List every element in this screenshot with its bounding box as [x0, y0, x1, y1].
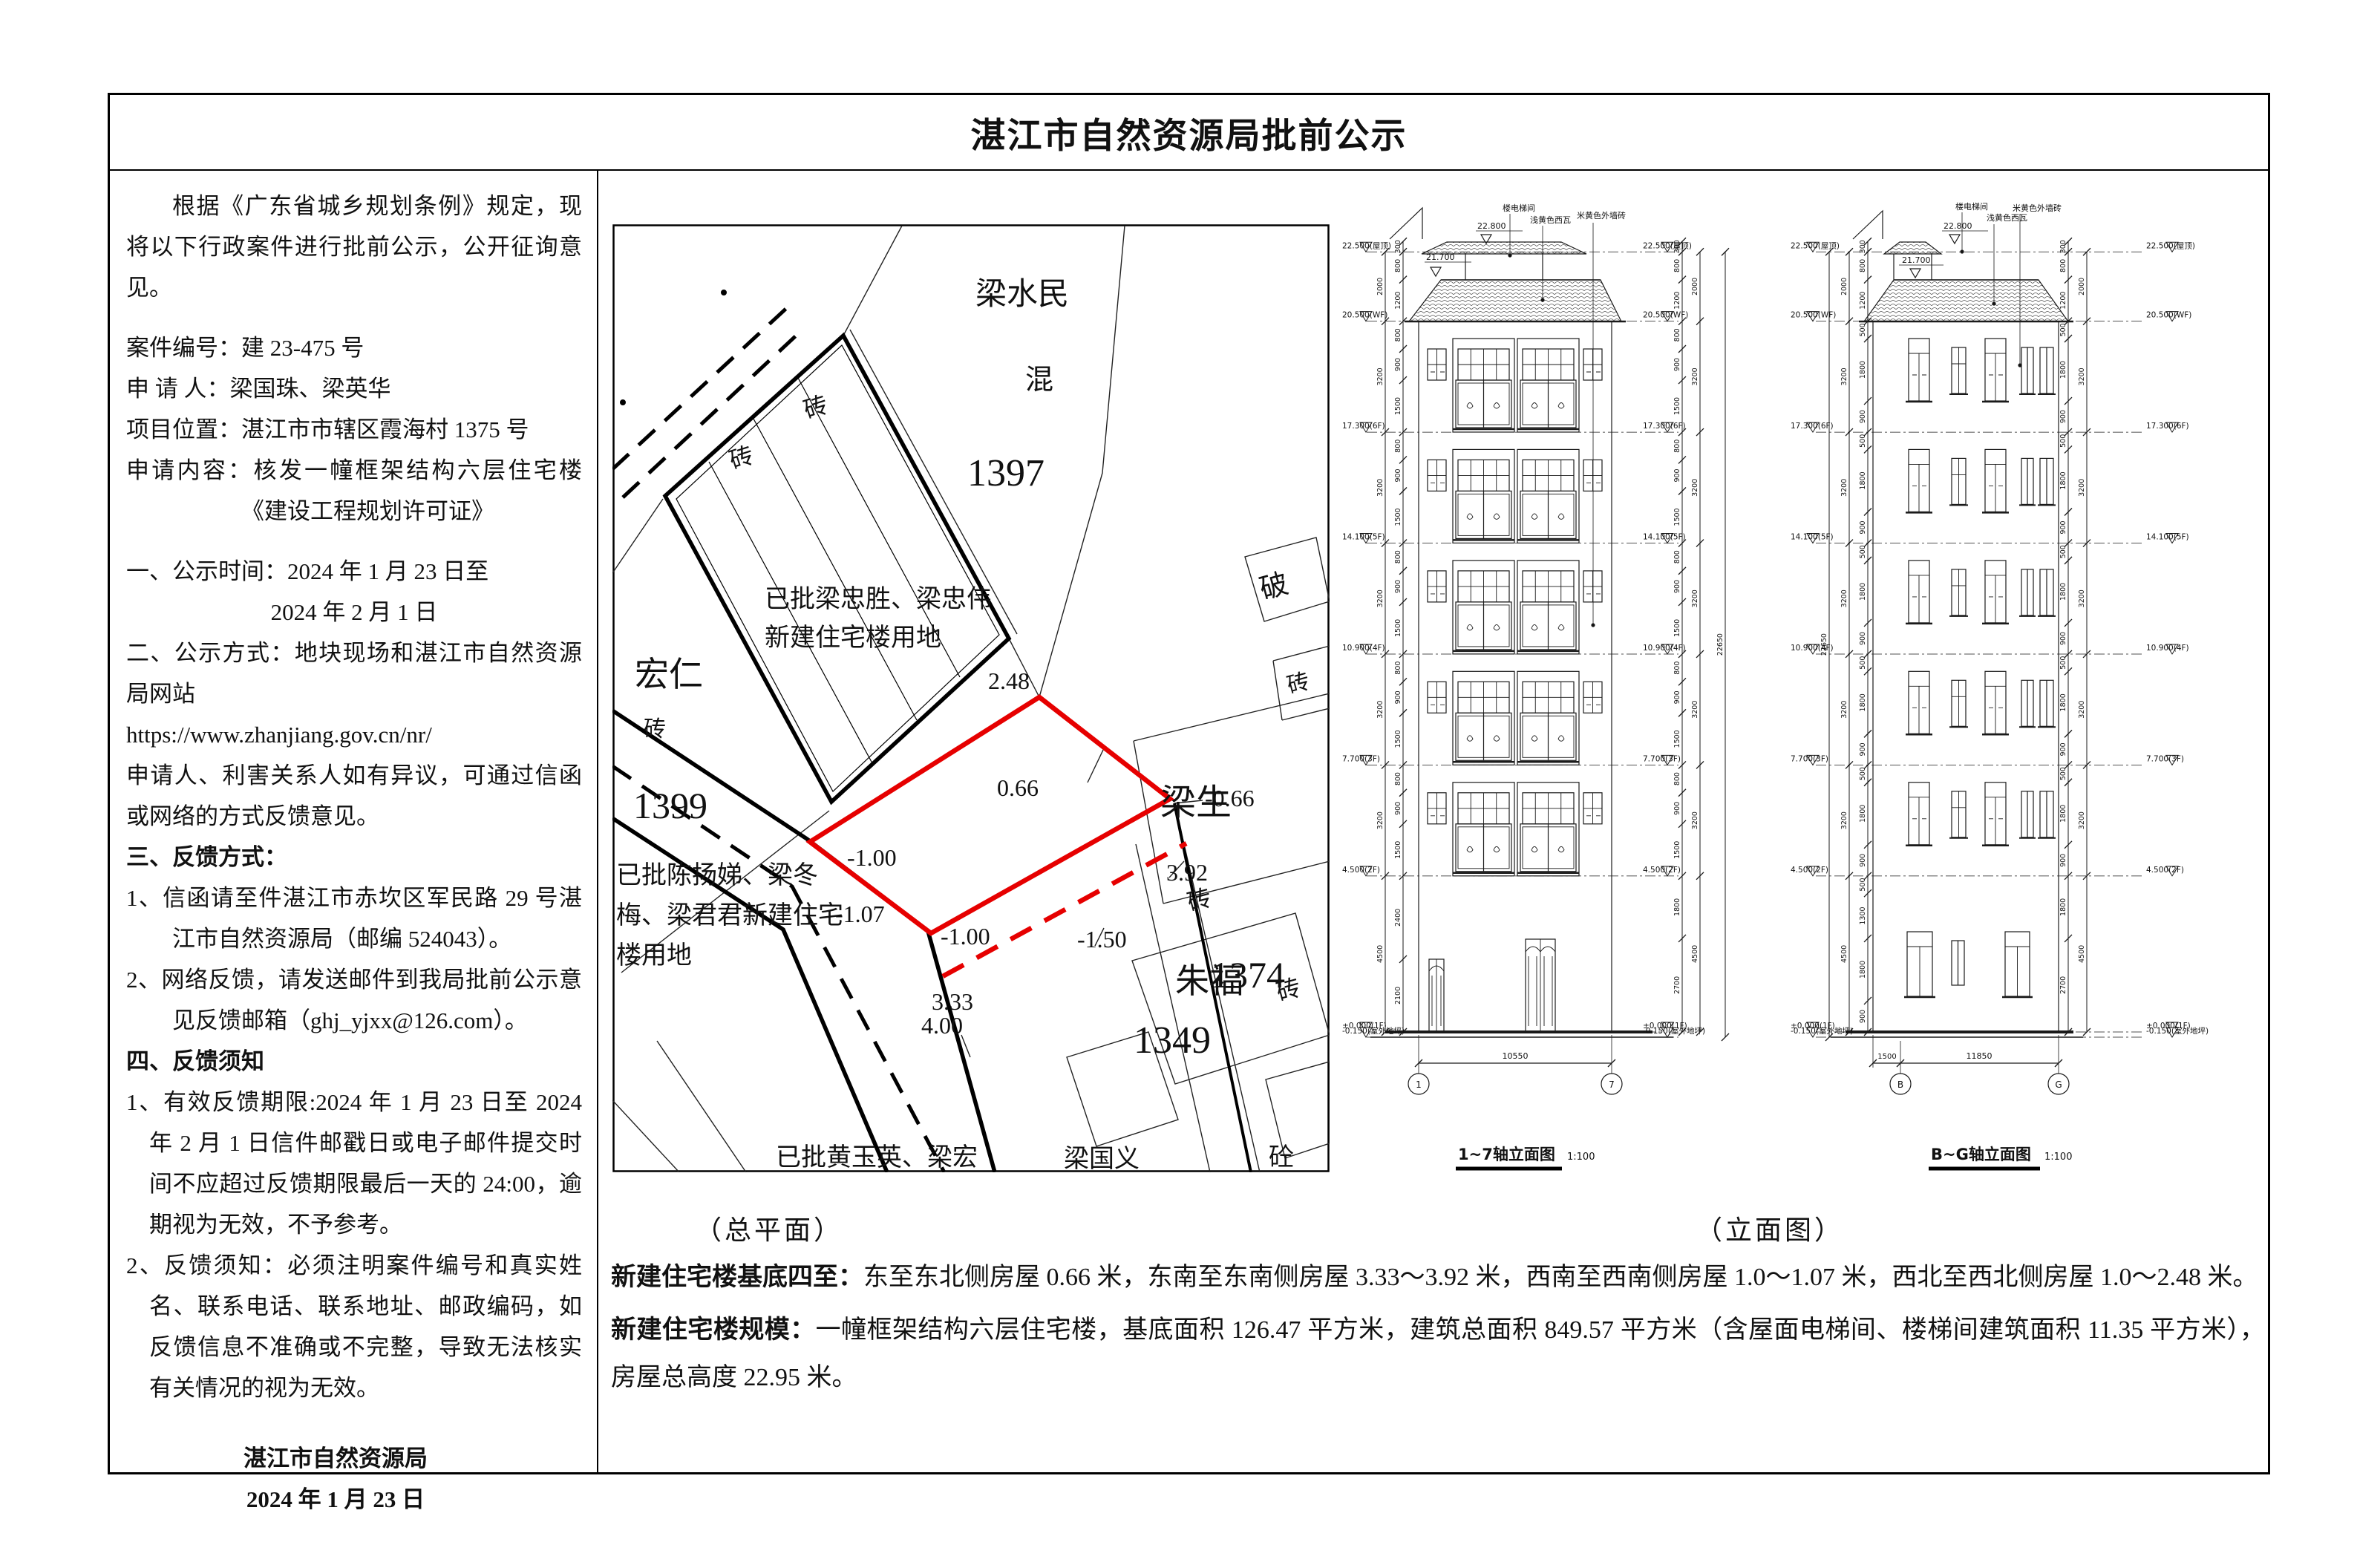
- svg-text:1800: 1800: [1859, 693, 1867, 711]
- svg-text:宏仁: 宏仁: [635, 656, 703, 693]
- svg-text:2000: 2000: [2078, 278, 2086, 295]
- svg-text:浅黄色西瓦: 浅黄色西瓦: [1987, 212, 2027, 223]
- svg-text:1800: 1800: [1859, 583, 1867, 601]
- text-line: 1、有效反馈期限:2024 年 1 月 23 日至 2024 年 2 月 1 日…: [126, 1082, 582, 1245]
- svg-text:3200: 3200: [1376, 701, 1385, 719]
- svg-text:-1.07: -1.07: [835, 901, 885, 927]
- svg-text:17.300(6F): 17.300(6F): [1342, 422, 1385, 431]
- svg-text:22.500(屋顶): 22.500(屋顶): [1643, 241, 1692, 250]
- svg-text:1800: 1800: [2059, 693, 2067, 711]
- svg-text:11850: 11850: [1967, 1051, 1993, 1061]
- svg-text:14.100(5F): 14.100(5F): [1342, 533, 1385, 542]
- svg-text:砖: 砖: [644, 717, 666, 742]
- svg-text:B~G轴立面图: B~G轴立面图: [1931, 1146, 2031, 1163]
- svg-text:500: 500: [2059, 323, 2067, 336]
- svg-text:800: 800: [2059, 259, 2067, 272]
- svg-text:4.500(2F): 4.500(2F): [1791, 866, 1828, 875]
- svg-text:B: B: [1897, 1079, 1903, 1090]
- svg-text:已批梁忠胜、梁忠伟: 已批梁忠胜、梁忠伟: [765, 585, 992, 613]
- svg-text:梅、梁君君新建住宅: 梅、梁君君新建住宅: [616, 901, 843, 930]
- svg-text:22.800: 22.800: [1944, 221, 1972, 231]
- svg-text:楼用地: 楼用地: [616, 941, 692, 970]
- svg-text:3.92: 3.92: [1166, 859, 1208, 886]
- svg-text:1200: 1200: [1394, 292, 1402, 310]
- svg-text:900: 900: [1394, 802, 1402, 815]
- svg-text:3200: 3200: [1840, 479, 1848, 497]
- svg-text:800: 800: [1673, 772, 1681, 785]
- svg-text:7.700(3F): 7.700(3F): [1791, 754, 1828, 763]
- svg-text:2.48: 2.48: [988, 667, 1030, 694]
- footer-notes: 新建住宅楼基底四至：东至东北侧房屋 0.66 米，东南至东南侧房屋 3.33～3…: [611, 1253, 2265, 1406]
- svg-text:1800: 1800: [1859, 961, 1867, 979]
- svg-text:900: 900: [2059, 410, 2067, 423]
- svg-text:1:100: 1:100: [1567, 1151, 1595, 1163]
- svg-text:500: 500: [2059, 767, 2067, 780]
- svg-text:梁国义: 梁国义: [1064, 1145, 1140, 1172]
- svg-text:3200: 3200: [1840, 701, 1848, 719]
- svg-text:新建住宅楼用地: 新建住宅楼用地: [765, 624, 941, 652]
- svg-text:1500: 1500: [1673, 841, 1681, 859]
- svg-text:4.500(2F): 4.500(2F): [1342, 866, 1380, 875]
- svg-text:3200: 3200: [1691, 367, 1699, 385]
- svg-text:3200: 3200: [1376, 479, 1385, 497]
- svg-text:4.500(2F): 4.500(2F): [1643, 866, 1681, 875]
- svg-text:900: 900: [1859, 632, 1867, 645]
- svg-text:楼电梯间: 楼电梯间: [1503, 203, 1535, 213]
- svg-text:1500: 1500: [1673, 508, 1681, 526]
- notice-table: 湛江市自然资源局批前公示 根据《广东省城乡规划条例》规定，现将以下行政案件进行批…: [108, 93, 2270, 1474]
- svg-text:-0.150(室外地坪): -0.150(室外地坪): [2146, 1026, 2209, 1036]
- svg-text:3200: 3200: [2078, 589, 2086, 607]
- svg-text:1300: 1300: [1859, 906, 1867, 924]
- svg-text:砼: 砼: [1269, 1143, 1294, 1172]
- svg-text:3200: 3200: [2078, 811, 2086, 829]
- svg-text:混: 混: [1025, 365, 1053, 396]
- svg-text:20.500(WF): 20.500(WF): [1791, 311, 1836, 320]
- svg-text:800: 800: [1394, 259, 1402, 272]
- svg-text:900: 900: [1859, 742, 1867, 756]
- text-line: 申请内容：核发一幢框架结构六层住宅楼《建设工程规划许可证》: [126, 450, 582, 532]
- text-line: 2024 年 2 月 1 日: [126, 592, 582, 633]
- svg-text:2700: 2700: [2059, 976, 2067, 994]
- site-plan-caption: （总平面）: [695, 1209, 843, 1247]
- elevation-b-g: 22650 2000320032003200320032004500 30080…: [1742, 180, 2270, 1178]
- svg-text:0.66: 0.66: [997, 774, 1039, 801]
- svg-text:4500: 4500: [1376, 945, 1385, 963]
- building-geometry: [1831, 211, 2083, 1169]
- svg-text:900: 900: [2059, 520, 2067, 534]
- svg-text:800: 800: [1859, 259, 1867, 272]
- svg-text:900: 900: [1859, 1010, 1867, 1023]
- svg-text:7.700(3F): 7.700(3F): [2146, 754, 2184, 763]
- svg-text:4500: 4500: [2078, 945, 2086, 963]
- svg-text:4500: 4500: [1840, 945, 1848, 963]
- svg-text:14.100(5F): 14.100(5F): [1643, 533, 1686, 542]
- svg-text:1500: 1500: [1394, 841, 1402, 859]
- svg-text:1800: 1800: [2059, 583, 2067, 601]
- building-geometry: [1370, 208, 1673, 1169]
- svg-text:-0.150(室外地坪): -0.150(室外地坪): [1791, 1026, 1853, 1036]
- svg-text:900: 900: [1673, 580, 1681, 593]
- svg-text:900: 900: [1394, 468, 1402, 482]
- svg-text:3200: 3200: [2078, 479, 2086, 497]
- svg-text:梁水民: 梁水民: [975, 278, 1069, 312]
- text-line: 四、反馈须知: [126, 1041, 582, 1082]
- svg-text:800: 800: [1394, 550, 1402, 563]
- svg-text:17.300(6F): 17.300(6F): [2146, 422, 2189, 431]
- svg-text:1399: 1399: [633, 785, 707, 826]
- svg-text:900: 900: [1673, 690, 1681, 704]
- svg-text:1800: 1800: [2059, 898, 2067, 916]
- svg-text:4500: 4500: [1691, 945, 1699, 963]
- svg-text:900: 900: [2059, 854, 2067, 867]
- elevation-b-g-labels: 楼电梯间浅黄色西瓦米黄色外墙砖22.80021.700150011850BGB~…: [1877, 201, 2072, 1163]
- svg-text:7: 7: [1609, 1079, 1615, 1090]
- svg-text:1: 1: [1416, 1079, 1422, 1090]
- svg-text:900: 900: [1859, 854, 1867, 867]
- svg-text:-0.150(室外地坪): -0.150(室外地坪): [1342, 1026, 1405, 1036]
- svg-text:1200: 1200: [2059, 292, 2067, 310]
- svg-text:800: 800: [1673, 328, 1681, 342]
- svg-text:1:100: 1:100: [2044, 1151, 2072, 1163]
- svg-text:500: 500: [2059, 545, 2067, 558]
- text-line: 项目位置：湛江市市辖区霞海村 1375 号: [126, 409, 582, 450]
- svg-text:已批黄玉英、梁宏: 已批黄玉英、梁宏: [776, 1143, 978, 1172]
- svg-text:500: 500: [1859, 767, 1867, 780]
- svg-text:300: 300: [1394, 240, 1402, 253]
- svg-text:1~7轴立面图: 1~7轴立面图: [1458, 1146, 1555, 1163]
- svg-text:10550: 10550: [1503, 1051, 1529, 1061]
- svg-text:2700: 2700: [1673, 976, 1681, 994]
- svg-text:4.500(2F): 4.500(2F): [2146, 866, 2184, 875]
- site-extents-label: 新建住宅楼基底四至：: [611, 1263, 863, 1291]
- svg-text:1500: 1500: [1394, 619, 1402, 637]
- svg-text:3200: 3200: [1691, 589, 1699, 607]
- svg-text:G: G: [2055, 1079, 2062, 1090]
- svg-text:1349: 1349: [1134, 1019, 1211, 1062]
- svg-text:800: 800: [1673, 440, 1681, 453]
- svg-text:1500: 1500: [1673, 730, 1681, 748]
- svg-text:900: 900: [1673, 468, 1681, 482]
- elevation-1-7: 2000320032003200320032004500 30080012008…: [1341, 180, 1738, 1178]
- svg-text:1500: 1500: [1877, 1053, 1896, 1061]
- svg-text:-1.00: -1.00: [941, 923, 990, 950]
- text-line: 案件编号：建 23-475 号: [126, 327, 582, 368]
- svg-text:900: 900: [1859, 410, 1867, 423]
- svg-text:900: 900: [1673, 802, 1681, 815]
- svg-text:900: 900: [1859, 520, 1867, 534]
- svg-text:300: 300: [1859, 240, 1867, 253]
- text-line: 一、公示时间：2024 年 1 月 23 日至: [126, 551, 582, 592]
- svg-text:浅黄色西瓦: 浅黄色西瓦: [1530, 215, 1571, 225]
- svg-text:2400: 2400: [1394, 909, 1402, 927]
- svg-text:900: 900: [2059, 742, 2067, 756]
- svg-text:3200: 3200: [1376, 367, 1385, 385]
- text-line: 1、信函请至件湛江市赤坎区军民路 29 号湛江市自然资源局（邮编 524043）…: [126, 878, 582, 959]
- svg-text:900: 900: [1394, 358, 1402, 371]
- text-line: 2、网络反馈，请发送邮件到我局批前公示意见反馈邮箱（ghj_yjxx@126.c…: [126, 959, 582, 1041]
- svg-text:21.700: 21.700: [1902, 255, 1931, 265]
- svg-text:22.800: 22.800: [1477, 221, 1506, 231]
- svg-text:1500: 1500: [1673, 397, 1681, 415]
- svg-text:1200: 1200: [1859, 292, 1867, 310]
- site-plan-drawing: 梁水民混1397砖砖宏仁砖1399破砖梁生砖1374朱福砖1349已批梁忠胜、梁…: [612, 224, 1330, 1172]
- svg-text:1800: 1800: [1859, 805, 1867, 823]
- svg-text:1800: 1800: [1859, 361, 1867, 379]
- svg-text:800: 800: [1394, 661, 1402, 675]
- svg-text:14.100(5F): 14.100(5F): [1791, 533, 1834, 542]
- text-line: 2、反馈须知：必须注明案件编号和真实姓名、联系电话、联系地址、邮政编码，如反馈信…: [126, 1245, 582, 1408]
- svg-text:800: 800: [1394, 328, 1402, 342]
- svg-text:1500: 1500: [1394, 397, 1402, 415]
- svg-text:800: 800: [1394, 772, 1402, 785]
- text-line: 根据《广东省城乡规划条例》规定，现将以下行政案件进行批前公示，公开征询意见。: [126, 186, 582, 308]
- svg-text:1500: 1500: [1394, 730, 1402, 748]
- svg-text:14.100(5F): 14.100(5F): [2146, 533, 2189, 542]
- svg-text:1397: 1397: [967, 452, 1045, 494]
- svg-text:300: 300: [2059, 240, 2067, 253]
- svg-text:朱福: 朱福: [1175, 962, 1243, 1000]
- drawings-panel: 梁水民混1397砖砖宏仁砖1399破砖梁生砖1374朱福砖1349已批梁忠胜、梁…: [598, 171, 2268, 1472]
- svg-text:500: 500: [1859, 878, 1867, 891]
- svg-text:-1.50: -1.50: [1077, 926, 1127, 953]
- svg-text:7.700(3F): 7.700(3F): [1342, 754, 1380, 763]
- svg-text:3200: 3200: [1840, 589, 1848, 607]
- svg-text:米黄色外墙砖: 米黄色外墙砖: [1577, 210, 1626, 220]
- svg-text:1800: 1800: [1859, 471, 1867, 489]
- svg-text:17.300(6F): 17.300(6F): [1791, 422, 1834, 431]
- text-line: 三、反馈方式：: [126, 837, 582, 878]
- svg-text:22.500(屋顶): 22.500(屋顶): [2146, 241, 2195, 250]
- svg-text:1800: 1800: [2059, 805, 2067, 823]
- svg-text:500: 500: [1859, 323, 1867, 336]
- level-markers: 22.500(屋顶)22.500(屋顶)20.500(WF)20.500(WF)…: [1791, 241, 2209, 1037]
- elevation-caption: （立面图）: [1696, 1209, 1844, 1247]
- text-line: 二、公示方式：地块现场和湛江市自然资源局网站: [126, 633, 582, 714]
- svg-text:500: 500: [1859, 545, 1867, 558]
- svg-text:楼电梯间: 楼电梯间: [1955, 201, 1988, 212]
- svg-text:900: 900: [1394, 690, 1402, 704]
- notice-page: 湛江市自然资源局批前公示 根据《广东省城乡规划条例》规定，现将以下行政案件进行批…: [0, 0, 2357, 1568]
- svg-text:1800: 1800: [1673, 898, 1681, 916]
- svg-text:1800: 1800: [2059, 471, 2067, 489]
- svg-text:-1.00: -1.00: [847, 844, 897, 871]
- left-panel: 根据《广东省城乡规划条例》规定，现将以下行政案件进行批前公示，公开征询意见。案件…: [110, 171, 598, 1472]
- svg-text:22.500(屋顶): 22.500(屋顶): [1791, 241, 1840, 250]
- svg-text:800: 800: [1673, 550, 1681, 563]
- svg-text:10.900(4F): 10.900(4F): [1342, 644, 1385, 653]
- svg-text:22650: 22650: [1716, 633, 1725, 656]
- svg-text:米黄色外墙砖: 米黄色外墙砖: [2013, 203, 2062, 213]
- text-line: 湛江市自然资源局: [126, 1438, 582, 1479]
- building-scale-label: 新建住宅楼规模：: [611, 1316, 816, 1344]
- svg-text:3200: 3200: [1376, 589, 1385, 607]
- svg-text:1500: 1500: [1394, 508, 1402, 526]
- svg-text:500: 500: [1859, 656, 1867, 670]
- building-scale-note: 新建住宅楼规模：一幢框架结构六层住宅楼，基底面积 126.47 平方米，建筑总面…: [611, 1306, 2265, 1402]
- svg-text:1200: 1200: [1673, 292, 1681, 310]
- text-line: 申请人、利害关系人如有异议，可通过信函或网络的方式反馈意见。: [126, 755, 582, 837]
- svg-text:10.900(4F): 10.900(4F): [1791, 644, 1834, 653]
- svg-text:800: 800: [1394, 440, 1402, 453]
- svg-text:20.500(WF): 20.500(WF): [2146, 311, 2191, 320]
- text-line: 2024 年 1 月 23 日: [126, 1479, 582, 1520]
- svg-text:800: 800: [1673, 661, 1681, 675]
- svg-text:3200: 3200: [1840, 367, 1848, 385]
- svg-text:-0.150(室外地坪): -0.150(室外地坪): [1643, 1026, 1705, 1036]
- svg-text:2100: 2100: [1394, 987, 1402, 1004]
- text-line: 申 请 人：梁国珠、梁英华: [126, 368, 582, 409]
- svg-text:3200: 3200: [1691, 479, 1699, 497]
- svg-text:500: 500: [2059, 656, 2067, 670]
- svg-text:7.700(3F): 7.700(3F): [1643, 754, 1681, 763]
- svg-text:3.33: 3.33: [932, 988, 973, 1015]
- svg-text:900: 900: [2059, 632, 2067, 645]
- svg-text:22.500(屋顶): 22.500(屋顶): [1342, 241, 1391, 250]
- svg-text:4.00: 4.00: [921, 1012, 963, 1039]
- svg-text:1500: 1500: [1673, 619, 1681, 637]
- svg-text:900: 900: [1673, 358, 1681, 371]
- svg-text:10.900(4F): 10.900(4F): [2146, 644, 2189, 653]
- svg-text:3200: 3200: [1691, 701, 1699, 719]
- site-extents-note: 新建住宅楼基底四至：东至东北侧房屋 0.66 米，东南至东南侧房屋 3.33～3…: [611, 1253, 2265, 1301]
- elevation-1-7-labels: 楼电梯间浅黄色西瓦米黄色外墙砖22.80021.70010550171~7轴立面…: [1416, 203, 1626, 1163]
- svg-text:3200: 3200: [2078, 367, 2086, 385]
- svg-text:2000: 2000: [1376, 278, 1385, 295]
- svg-text:已批陈扬娣、梁冬: 已批陈扬娣、梁冬: [616, 861, 818, 889]
- svg-text:3200: 3200: [1691, 811, 1699, 829]
- text-line: https://www.zhanjiang.gov.cn/nr/: [126, 714, 582, 755]
- svg-text:500: 500: [2059, 434, 2067, 448]
- svg-text:3200: 3200: [2078, 701, 2086, 719]
- svg-text:900: 900: [1394, 580, 1402, 593]
- svg-text:500: 500: [1859, 434, 1867, 448]
- title-row: 湛江市自然资源局批前公示: [110, 95, 2268, 171]
- svg-text:20.500(WF): 20.500(WF): [1342, 311, 1387, 320]
- svg-text:17.300(6F): 17.300(6F): [1643, 422, 1686, 431]
- svg-text:21.700: 21.700: [1426, 252, 1455, 262]
- svg-text:800: 800: [1673, 259, 1681, 272]
- svg-text:1800: 1800: [2059, 361, 2067, 379]
- svg-text:-0.66: -0.66: [1205, 785, 1255, 811]
- svg-text:2000: 2000: [1840, 278, 1848, 295]
- svg-text:3200: 3200: [1376, 811, 1385, 829]
- svg-text:20.500(WF): 20.500(WF): [1643, 311, 1688, 320]
- svg-text:10.900(4F): 10.900(4F): [1643, 644, 1686, 653]
- page-title: 湛江市自然资源局批前公示: [971, 107, 1408, 158]
- svg-text:2000: 2000: [1691, 278, 1699, 295]
- svg-text:3200: 3200: [1840, 811, 1848, 829]
